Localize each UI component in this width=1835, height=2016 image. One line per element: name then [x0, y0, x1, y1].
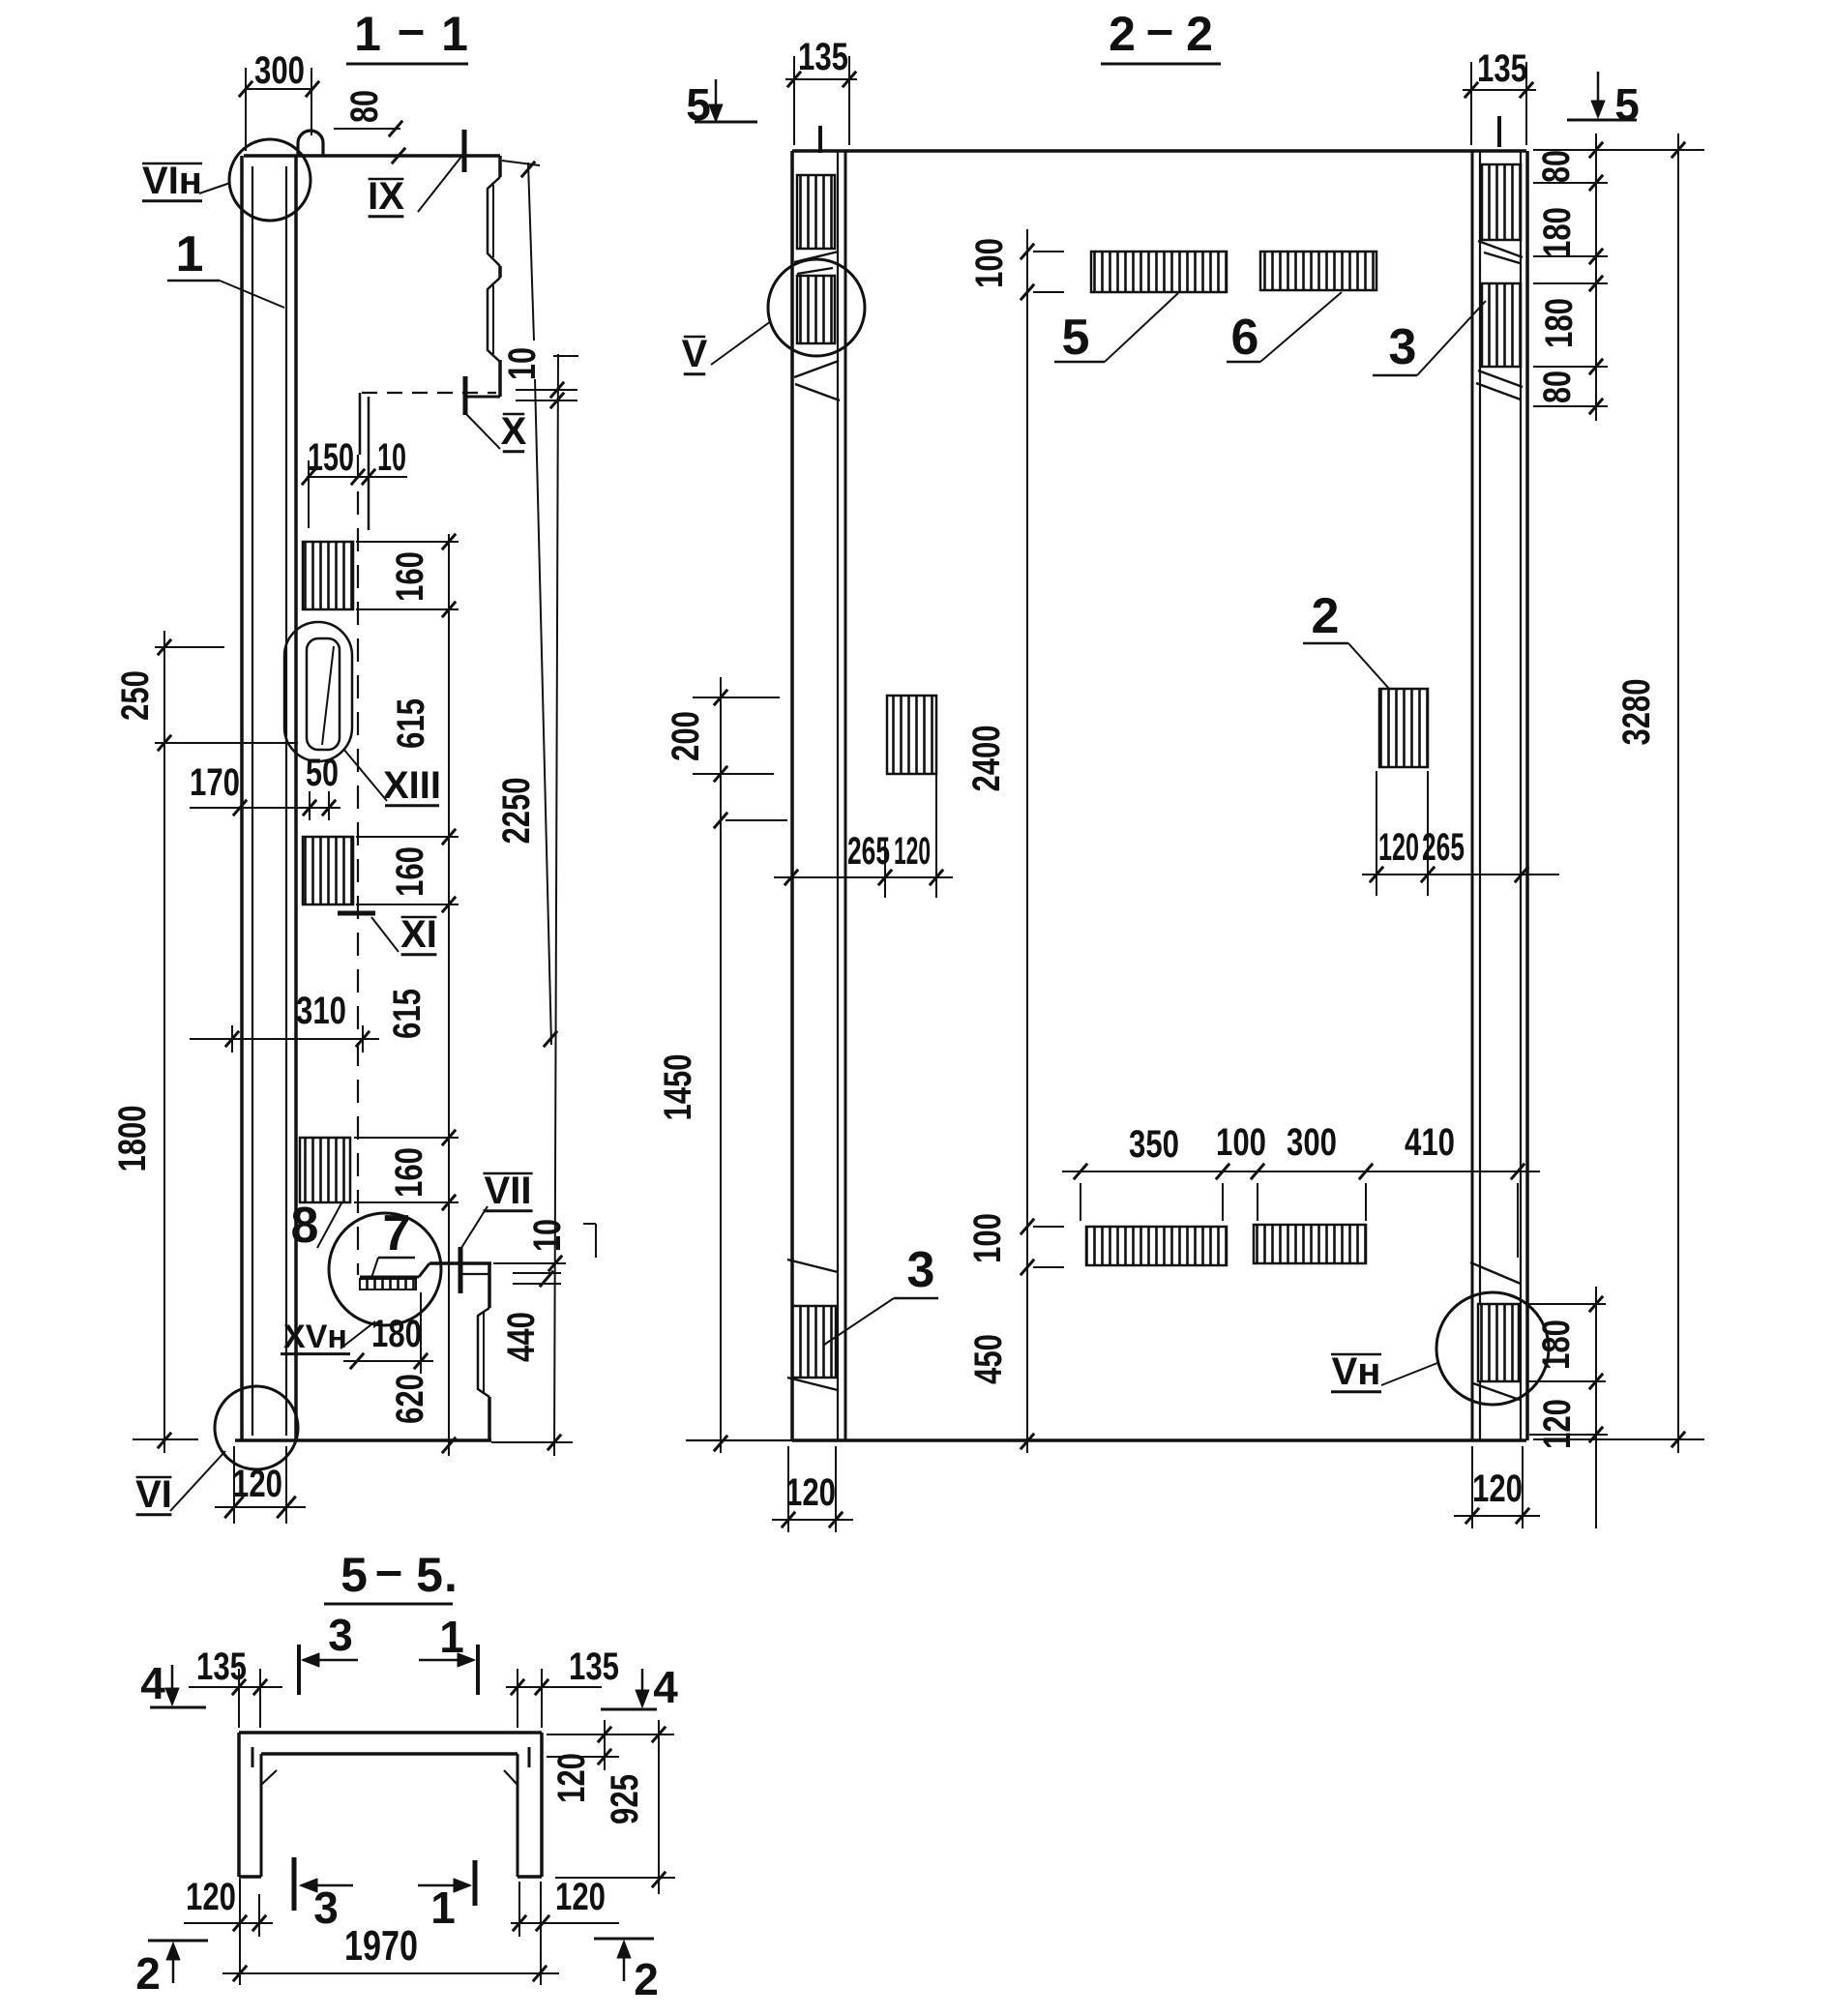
svg-text:265: 265 — [847, 830, 890, 873]
svg-text:2: 2 — [135, 1948, 161, 1999]
svg-text:80: 80 — [343, 90, 386, 123]
svg-text:1: 1 — [441, 7, 468, 61]
svg-text:450: 450 — [967, 1334, 1010, 1384]
svg-text:180: 180 — [371, 1313, 422, 1355]
svg-text:2: 2 — [1186, 7, 1213, 61]
svg-text:350: 350 — [1129, 1123, 1179, 1166]
svg-text:.: . — [444, 1548, 458, 1602]
svg-text:XVн: XVн — [283, 1319, 347, 1355]
svg-text:5: 5 — [340, 1548, 368, 1602]
svg-text:2: 2 — [634, 1954, 659, 2004]
svg-text:615: 615 — [390, 698, 432, 749]
svg-text:–: – — [1146, 2, 1173, 56]
svg-text:50: 50 — [306, 752, 339, 794]
svg-text:300: 300 — [1287, 1121, 1337, 1164]
svg-text:6: 6 — [1231, 310, 1259, 366]
svg-text:300: 300 — [254, 49, 305, 92]
svg-text:615: 615 — [386, 989, 429, 1039]
svg-text:135: 135 — [196, 1645, 247, 1688]
svg-text:120: 120 — [1378, 826, 1419, 869]
svg-text:135: 135 — [569, 1645, 619, 1688]
svg-text:5: 5 — [1062, 310, 1090, 366]
svg-text:120: 120 — [1536, 1399, 1579, 1449]
svg-text:180: 180 — [1535, 1319, 1578, 1370]
svg-text:440: 440 — [500, 1312, 543, 1362]
svg-text:250: 250 — [114, 670, 157, 721]
svg-text:170: 170 — [190, 761, 240, 804]
svg-text:1: 1 — [430, 1883, 456, 1933]
svg-text:120: 120 — [186, 1876, 236, 1918]
svg-text:1: 1 — [176, 226, 204, 282]
svg-text:4: 4 — [653, 1662, 678, 1712]
svg-text:XIII: XIII — [383, 764, 441, 807]
svg-text:3: 3 — [328, 1610, 353, 1660]
svg-text:VIн: VIн — [142, 160, 202, 202]
svg-text:10: 10 — [501, 347, 544, 380]
svg-text:120: 120 — [555, 1876, 606, 1918]
svg-text:160: 160 — [389, 846, 431, 897]
svg-text:135: 135 — [798, 36, 848, 78]
svg-text:200: 200 — [665, 711, 707, 761]
svg-text:3: 3 — [907, 1242, 935, 1298]
svg-text:620: 620 — [389, 1374, 431, 1424]
svg-text:–: – — [375, 1543, 402, 1597]
svg-text:Vн: Vн — [1332, 1350, 1381, 1393]
svg-text:2400: 2400 — [965, 726, 1008, 792]
svg-text:120: 120 — [785, 1471, 836, 1514]
svg-text:1450: 1450 — [657, 1054, 699, 1121]
svg-text:VI: VI — [135, 1473, 172, 1516]
svg-text:5: 5 — [1614, 79, 1640, 130]
svg-text:120: 120 — [550, 1753, 593, 1803]
svg-text:1: 1 — [354, 7, 381, 61]
svg-text:265: 265 — [1422, 826, 1465, 869]
svg-text:3: 3 — [1389, 319, 1417, 375]
svg-text:7: 7 — [383, 1205, 411, 1261]
svg-text:80: 80 — [1535, 150, 1578, 183]
svg-text:180: 180 — [1538, 298, 1581, 348]
svg-text:XI: XI — [400, 913, 437, 956]
svg-text:5: 5 — [416, 1548, 443, 1602]
svg-text:10: 10 — [526, 1219, 569, 1252]
svg-text:160: 160 — [389, 551, 431, 602]
svg-text:IX: IX — [368, 175, 404, 218]
svg-text:160: 160 — [388, 1147, 430, 1198]
svg-text:180: 180 — [1536, 207, 1579, 257]
svg-text:1800: 1800 — [111, 1106, 154, 1172]
svg-text:410: 410 — [1405, 1121, 1455, 1164]
svg-text:120: 120 — [232, 1463, 282, 1505]
svg-text:VII: VII — [485, 1170, 532, 1212]
svg-text:100: 100 — [968, 238, 1011, 288]
svg-text:V: V — [682, 333, 708, 375]
svg-text:310: 310 — [296, 990, 346, 1032]
svg-text:–: – — [398, 2, 425, 56]
svg-text:3280: 3280 — [1615, 679, 1658, 746]
svg-text:2: 2 — [1312, 588, 1340, 644]
svg-text:120: 120 — [1472, 1468, 1523, 1510]
svg-text:100: 100 — [1216, 1121, 1266, 1164]
svg-text:8: 8 — [291, 1198, 319, 1254]
svg-text:2: 2 — [1109, 7, 1136, 61]
svg-text:X: X — [501, 410, 527, 453]
svg-text:100: 100 — [966, 1213, 1009, 1263]
svg-text:135: 135 — [1477, 47, 1527, 90]
svg-text:2250: 2250 — [495, 778, 538, 845]
svg-text:925: 925 — [604, 1774, 646, 1824]
svg-text:80: 80 — [1536, 371, 1579, 403]
svg-text:150: 150 — [308, 436, 354, 479]
svg-text:1970: 1970 — [344, 1922, 418, 1970]
svg-text:120: 120 — [894, 830, 931, 873]
svg-text:4: 4 — [140, 1658, 165, 1708]
svg-text:10: 10 — [377, 436, 406, 479]
